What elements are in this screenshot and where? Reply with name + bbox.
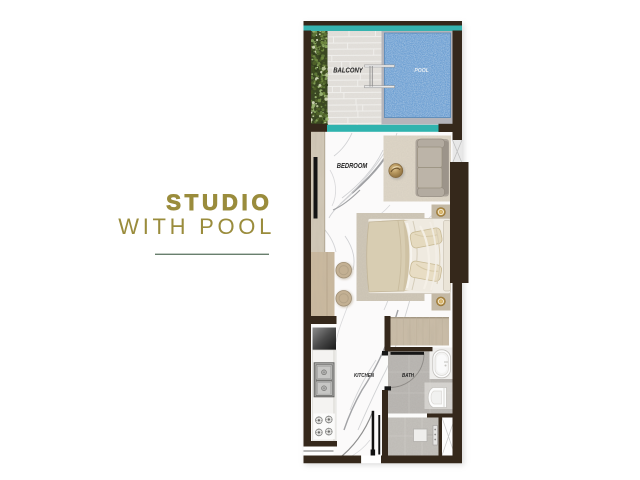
svg-text:POOL: POOL [414, 68, 429, 74]
svg-text:BATH: BATH [402, 373, 414, 379]
svg-text:WITH POOL: WITH POOL [118, 214, 275, 239]
svg-text:BALCONY: BALCONY [333, 68, 364, 75]
svg-text:STUDIO: STUDIO [166, 190, 272, 215]
svg-text:BEDROOM: BEDROOM [337, 163, 368, 170]
svg-text:KITCHEN: KITCHEN [354, 373, 374, 379]
